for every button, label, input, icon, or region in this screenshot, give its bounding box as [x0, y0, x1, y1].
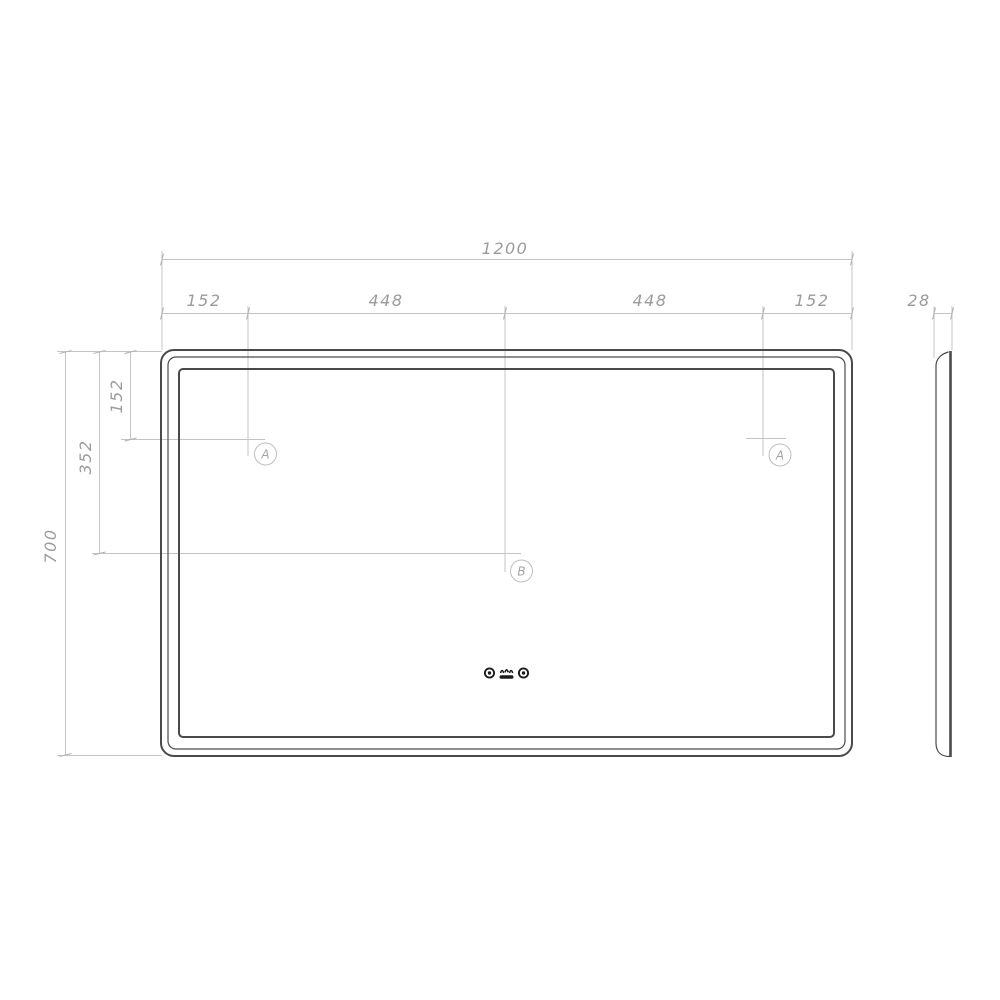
mounting-markers: A A B	[255, 443, 792, 582]
touch-control-icons	[485, 668, 528, 678]
dimension-labels: 1200 152 448 448 152 28 152 352 700	[41, 239, 931, 564]
technical-drawing-canvas: 1200 152 448 448 152 28 152 352 700 A A	[0, 0, 1000, 1000]
marker-label-right-hole: A	[775, 449, 784, 463]
dimension-ticks	[60, 254, 954, 757]
dim-label-seg-right: 152	[794, 291, 829, 310]
dim-label-height-center: 352	[76, 439, 95, 474]
anti-fog-icon	[500, 670, 514, 679]
drawing-page: 1200 152 448 448 152 28 152 352 700 A A	[0, 0, 1000, 1000]
dim-label-seg-mid-left: 448	[368, 291, 403, 310]
marker-label-left-hole: A	[260, 448, 269, 462]
dim-label-total-width: 1200	[482, 239, 529, 258]
dim-label-seg-left: 152	[186, 291, 221, 310]
dim-label-seg-mid-right: 448	[632, 291, 667, 310]
touch-sensor-left-icon	[485, 668, 494, 677]
mirror-side-view	[936, 351, 951, 757]
dimension-lines	[57, 251, 952, 756]
side-profile-face	[936, 352, 950, 757]
touch-sensor-right-icon	[519, 668, 528, 677]
dim-label-total-height: 700	[41, 528, 60, 563]
dim-label-height-top-holes: 152	[107, 378, 126, 413]
marker-label-center-point: B	[517, 565, 525, 579]
dim-label-depth: 28	[907, 291, 930, 310]
